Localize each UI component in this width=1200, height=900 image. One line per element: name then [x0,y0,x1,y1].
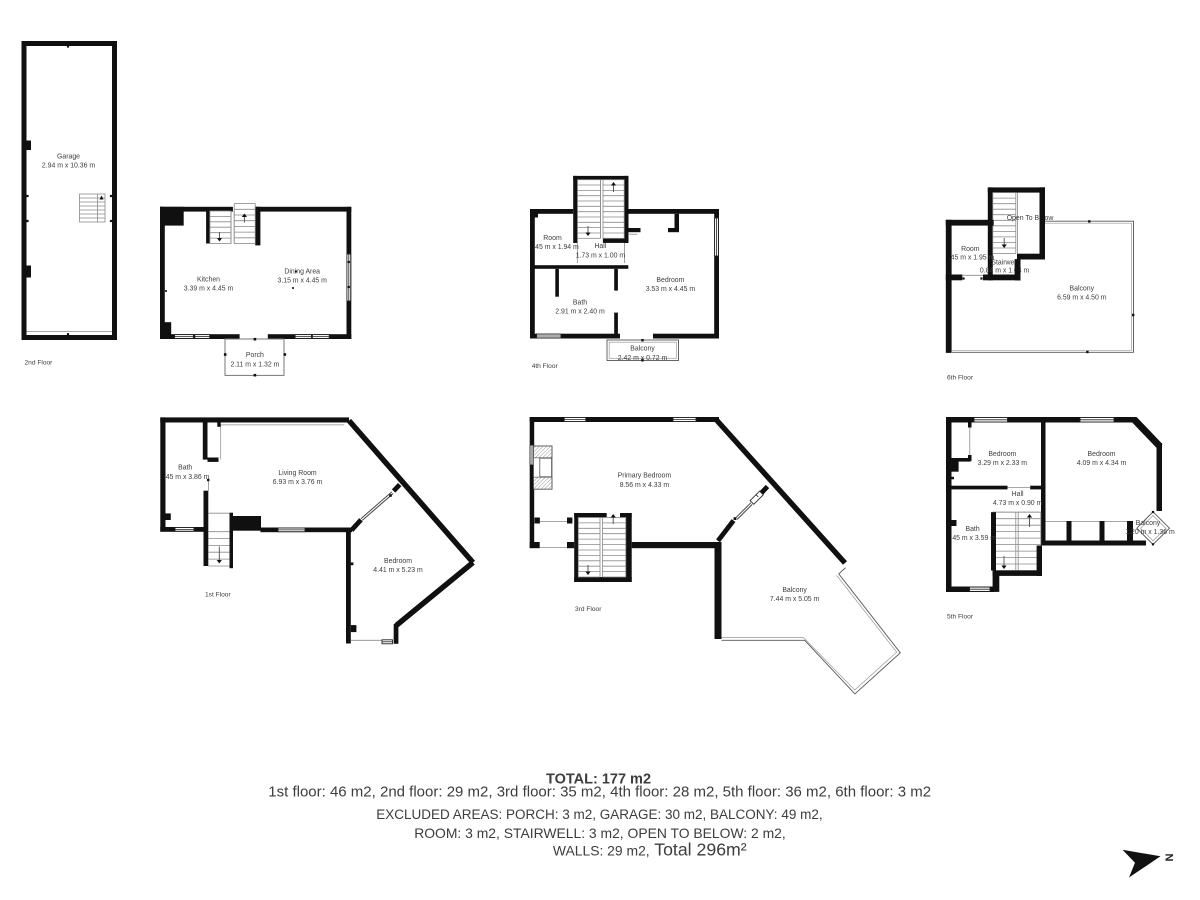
svg-text:Bedroom: Bedroom [656,277,684,284]
svg-text:Balcony: Balcony [1136,520,1161,527]
svg-text:Balcony: Balcony [630,346,655,353]
svg-text:1st floor: 46 m2, 2nd floor: 2: 1st floor: 46 m2, 2nd floor: 29 m2, 3rd … [268,784,931,801]
svg-text:1.73 m x 1.00 m: 1.73 m x 1.00 m [576,252,626,259]
svg-text:Bath: Bath [178,465,192,472]
svg-text:Dining Area: Dining Area [284,269,320,276]
svg-text:2nd Floor: 2nd Floor [25,360,54,367]
svg-text:3rd Floor: 3rd Floor [575,606,602,613]
svg-text:8.56 m x 4.33 m: 8.56 m x 4.33 m [620,482,670,489]
svg-text:3.53 m x 4.45 m: 3.53 m x 4.45 m [646,286,696,293]
svg-text:Porch: Porch [246,352,264,359]
svg-text:Hall: Hall [594,243,606,250]
svg-text:0.84 m x 1.04 m: 0.84 m x 1.04 m [980,268,1030,275]
svg-text:3.15 m x 4.45 m: 3.15 m x 4.45 m [277,278,327,285]
svg-text:4.73 m x 0.90 m: 4.73 m x 0.90 m [993,500,1043,507]
svg-text:.45 m x 3.86 m: .45 m x 3.86 m [164,474,210,481]
svg-text:.45 m x 1.94 m: .45 m x 1.94 m [533,244,579,251]
svg-text:1st Floor: 1st Floor [205,592,231,599]
svg-text:Room: Room [961,246,980,253]
svg-text:Primary Bedroom: Primary Bedroom [618,472,672,479]
svg-text:2.42 m x 0.72 m: 2.42 m x 0.72 m [618,355,668,362]
svg-text:6th Floor: 6th Floor [947,375,974,382]
svg-text:Bedroom: Bedroom [988,451,1016,458]
svg-text:4.41 m x 5.23 m: 4.41 m x 5.23 m [373,567,423,574]
svg-text:6.93 m x 3.76 m: 6.93 m x 3.76 m [273,479,323,486]
svg-text:WALLS: 29 m2, Total 296m²: WALLS: 29 m2, Total 296m² [553,840,747,860]
svg-text:5th Floor: 5th Floor [947,614,974,621]
svg-text:.45 m x 1.95 m: .45 m x 1.95 m [949,254,995,261]
svg-text:Bedroom: Bedroom [1088,451,1116,458]
svg-text:Stairwell: Stairwell [991,260,1018,267]
svg-text:6.59 m x 4.50 m: 6.59 m x 4.50 m [1057,294,1107,301]
svg-text:2.11 m x 1.32 m: 2.11 m x 1.32 m [230,362,279,369]
svg-text:2.91 m x 2.40 m: 2.91 m x 2.40 m [555,308,605,315]
svg-text:Garage: Garage [57,153,80,160]
svg-text:N: N [1163,854,1175,862]
svg-text:EXCLUDED AREAS: PORCH: 3 m2, G: EXCLUDED AREAS: PORCH: 3 m2, GARAGE: 30 … [376,807,822,822]
svg-text:1.20 m x 1.36 m: 1.20 m x 1.36 m [1125,529,1175,536]
svg-text:Kitchen: Kitchen [197,276,220,283]
svg-text:7.44 m x 5.05 m: 7.44 m x 5.05 m [770,596,820,603]
svg-text:.45 m x 3.59 m: .45 m x 3.59 m [950,535,996,542]
svg-text:Bath: Bath [573,299,587,306]
svg-text:3.29 m x 2.33 m: 3.29 m x 2.33 m [978,460,1028,467]
svg-text:Bath: Bath [966,526,980,533]
svg-text:Balcony: Balcony [782,587,807,594]
svg-text:4.09 m x 4.34 m: 4.09 m x 4.34 m [1077,460,1127,467]
svg-text:Room: Room [543,235,562,242]
svg-text:Bedroom: Bedroom [384,558,412,565]
svg-text:Living Room: Living Room [278,470,317,477]
svg-text:Balcony: Balcony [1070,285,1095,292]
svg-text:4th Floor: 4th Floor [532,363,559,370]
svg-text:Hall: Hall [1012,491,1024,498]
svg-text:2.94 m x 10.36 m: 2.94 m x 10.36 m [42,163,95,170]
svg-text:3.39 m x 4.45 m: 3.39 m x 4.45 m [184,285,234,292]
